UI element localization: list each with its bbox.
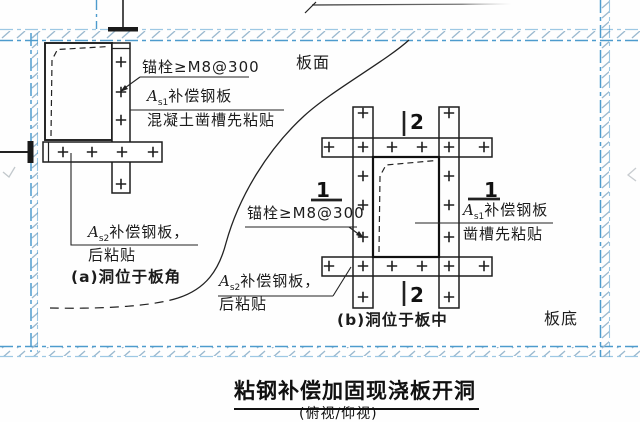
as1-text-b: 补偿钢板 <box>484 201 548 219</box>
anchor-bolt-label-b: 锚栓≥M8@300 <box>247 206 365 222</box>
as1-text: 补偿钢板 <box>168 87 232 105</box>
plate-as2-label-a: As2补偿钢板， <box>88 225 189 244</box>
detail-b-cut-dashed-line <box>379 161 436 253</box>
as2-sub: s2 <box>99 234 109 244</box>
as2-sub-b: s2 <box>230 283 240 293</box>
border-bottom-hatch <box>0 347 640 356</box>
detail-b-top-plate <box>322 138 492 157</box>
slab-bottom-label: 板底 <box>544 311 578 328</box>
section-1-left: 1 <box>316 178 330 202</box>
thin-edge-line <box>312 4 512 5</box>
drawing-sheet: 板面 板底 锚栓≥M8@300 As1补偿钢板 混凝土凿槽先粘贴 As2补偿钢板… <box>0 0 640 422</box>
as1-var: A <box>147 87 158 105</box>
slab-top-label: 板面 <box>296 55 330 72</box>
after-bond-note-b: 后粘贴 <box>219 297 267 313</box>
border-top-hatch <box>0 31 640 40</box>
as2-text-b: 补偿钢板， <box>240 272 320 290</box>
section-2-top: 2 <box>410 110 424 134</box>
caption-detail-b: (b)洞位于板中 <box>337 312 448 328</box>
detail-a-opening-outline <box>45 43 112 140</box>
as1-sub: s1 <box>158 98 168 108</box>
groove-note-a: 混凝土凿槽先粘贴 <box>147 113 275 129</box>
as1-var-b: A <box>463 201 474 219</box>
as2-var-b: A <box>219 272 230 290</box>
detail-a-cut-dashed-line <box>51 47 109 137</box>
anchor-bolt-label-a: 锚栓≥M8@300 <box>142 60 260 76</box>
as1-sub-b: s1 <box>474 212 484 222</box>
detail-b-opening-outline <box>373 157 439 257</box>
plate-as2-label-b: As2补偿钢板， <box>219 274 320 293</box>
plate-as1-label-a: As1补偿钢板 <box>147 89 232 108</box>
drawing-subtitle: (俯视/仰视) <box>299 403 378 422</box>
as2-text: 补偿钢板， <box>109 223 189 241</box>
caption-detail-a: (a)洞位于板角 <box>71 269 181 285</box>
as2-var: A <box>88 223 99 241</box>
section-1-right: 1 <box>484 178 498 202</box>
after-bond-note-a: 后粘贴 <box>88 248 136 264</box>
groove-note-b: 凿槽先粘贴 <box>463 227 543 243</box>
section-2-bottom: 2 <box>410 283 424 307</box>
border-right-hatch <box>601 0 609 357</box>
plate-as1-label-b: As1补偿钢板 <box>463 203 548 222</box>
